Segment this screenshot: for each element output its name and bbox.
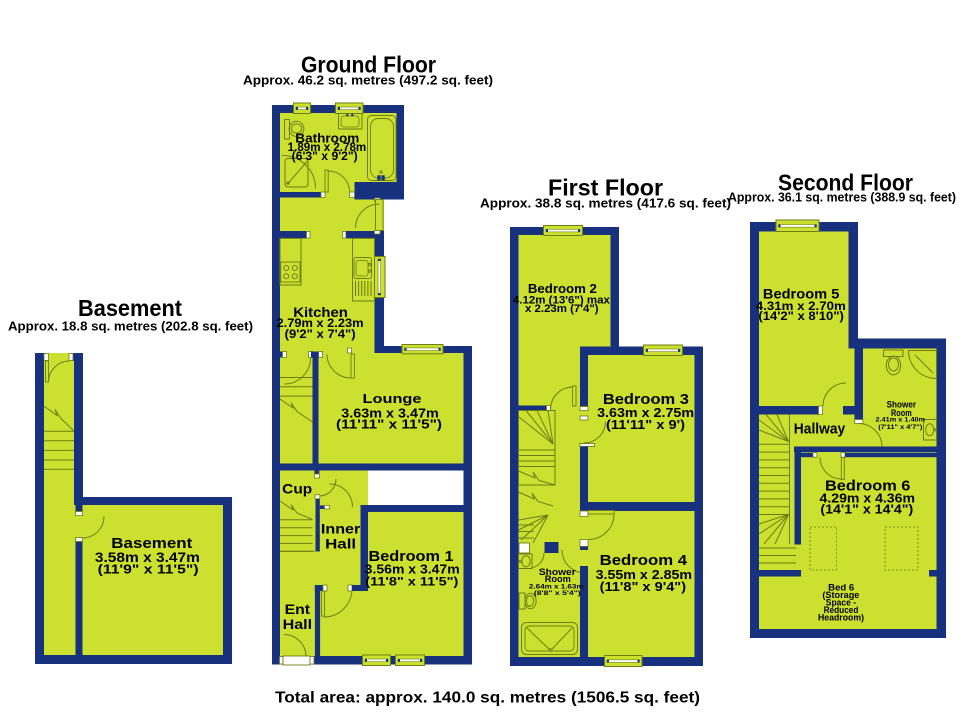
svg-text:Ent: Ent [285,601,311,617]
svg-text:(11'8" x 9'4"): (11'8" x 9'4") [600,579,687,594]
svg-text:Hall: Hall [325,536,356,551]
svg-text:Lounge: Lounge [363,391,422,406]
svg-text:Approx. 46.2 sq. metres (497.2: Approx. 46.2 sq. metres (497.2 sq. feet) [243,73,493,88]
svg-text:(8'8" x 5'4"): (8'8" x 5'4") [534,590,581,597]
svg-text:(11'8" x 11'5"): (11'8" x 11'5") [365,575,458,589]
svg-text:(14'2" x 8'10"): (14'2" x 8'10") [758,311,844,323]
svg-text:Cup: Cup [282,482,312,497]
svg-text:Approx. 18.8 sq. metres (202.8: Approx. 18.8 sq. metres (202.8 sq. feet) [8,318,253,333]
svg-text:2.41m x 1.40m: 2.41m x 1.40m [876,416,926,423]
svg-text:Approx. 36.1 sq. metres (388.9: Approx. 36.1 sq. metres (388.9 sq. feet) [728,189,956,204]
svg-text:(9'2" x 7'4"): (9'2" x 7'4") [285,329,356,341]
svg-text:(7'11" x 4'7"): (7'11" x 4'7") [878,424,922,431]
svg-text:Total area: approx. 140.0 sq.: Total area: approx. 140.0 sq. metres (15… [275,690,700,707]
svg-text:(6'3" x 9'2"): (6'3" x 9'2") [292,151,358,163]
svg-text:Inner: Inner [321,522,361,537]
svg-text:(11'11" x 9'): (11'11" x 9') [606,418,685,432]
svg-text:Basement: Basement [78,295,182,321]
svg-text:(14'1" x 14'4"): (14'1" x 14'4") [820,502,913,516]
svg-text:x 2.23m (7'4"): x 2.23m (7'4") [525,303,599,315]
svg-text:(11'11" x 11'5"): (11'11" x 11'5") [336,417,442,431]
svg-text:(11'9" x 11'5"): (11'9" x 11'5") [98,561,199,576]
svg-text:Hallway: Hallway [794,422,845,438]
svg-text:Hall: Hall [283,616,313,632]
svg-text:Approx. 38.8 sq. metres (417.6: Approx. 38.8 sq. metres (417.6 sq. feet) [480,195,731,210]
svg-text:Headroom): Headroom) [818,613,864,623]
